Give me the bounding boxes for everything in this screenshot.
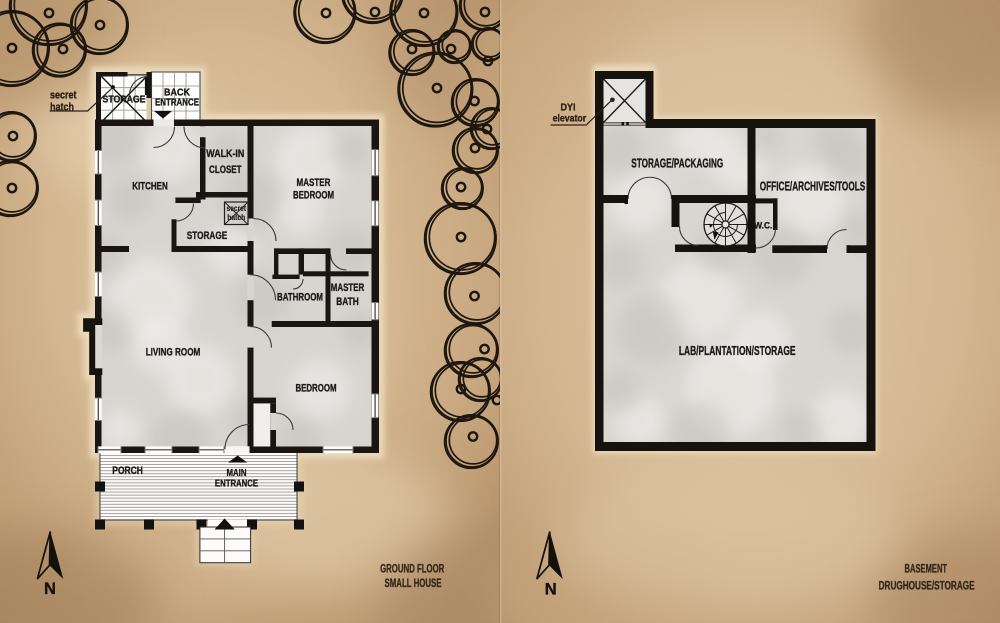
svg-text:BATHROOM: BATHROOM bbox=[277, 292, 323, 304]
svg-text:PORCH: PORCH bbox=[112, 465, 143, 477]
svg-text:hatch: hatch bbox=[50, 102, 74, 114]
svg-text:BATH: BATH bbox=[336, 296, 359, 308]
svg-text:STORAGE: STORAGE bbox=[103, 93, 146, 105]
svg-text:BEDROOM: BEDROOM bbox=[293, 189, 334, 201]
svg-text:ENTRANCE: ENTRANCE bbox=[215, 478, 258, 490]
svg-text:CLOSET: CLOSET bbox=[209, 164, 242, 176]
svg-text:hatch: hatch bbox=[227, 212, 245, 222]
svg-text:WALK-IN: WALK-IN bbox=[206, 148, 244, 160]
svg-text:DRUGHOUSE/STORAGE: DRUGHOUSE/STORAGE bbox=[879, 578, 975, 592]
svg-text:GROUND FLOOR: GROUND FLOOR bbox=[380, 561, 444, 575]
svg-text:N: N bbox=[545, 581, 557, 599]
svg-text:W.C.: W.C. bbox=[754, 221, 772, 231]
svg-text:elevator: elevator bbox=[553, 113, 587, 125]
svg-text:OFFICE/ARCHIVES/TOOLS: OFFICE/ARCHIVES/TOOLS bbox=[760, 180, 866, 194]
svg-text:secret: secret bbox=[50, 90, 77, 102]
svg-text:DYI: DYI bbox=[561, 101, 576, 113]
svg-text:SMALL HOUSE: SMALL HOUSE bbox=[385, 576, 442, 590]
svg-text:ENTRANCE: ENTRANCE bbox=[155, 97, 199, 109]
svg-text:MASTER: MASTER bbox=[297, 177, 331, 189]
svg-text:LIVING ROOM: LIVING ROOM bbox=[146, 346, 201, 358]
svg-text:MASTER: MASTER bbox=[331, 282, 365, 294]
svg-text:KITCHEN: KITCHEN bbox=[132, 181, 168, 193]
svg-text:STORAGE: STORAGE bbox=[187, 230, 228, 242]
svg-text:BEDROOM: BEDROOM bbox=[295, 382, 336, 394]
svg-text:N: N bbox=[44, 580, 56, 598]
svg-text:STORAGE/PACKAGING: STORAGE/PACKAGING bbox=[631, 157, 723, 171]
svg-text:BASEMENT: BASEMENT bbox=[905, 561, 948, 575]
svg-text:LAB/PLANTATION/STORAGE: LAB/PLANTATION/STORAGE bbox=[679, 344, 796, 358]
